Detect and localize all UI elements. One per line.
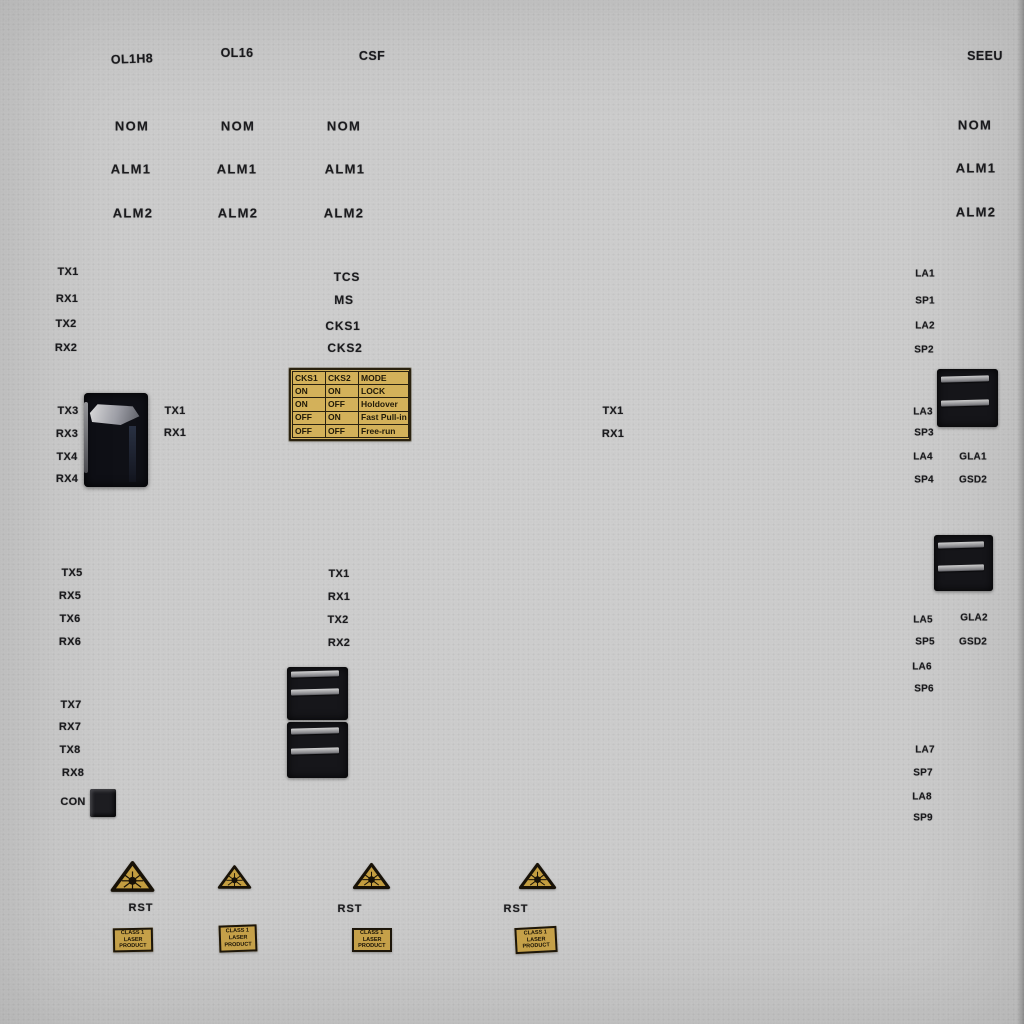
port-label-sp4: SP4 (914, 475, 934, 486)
panel-right-edge (1017, 0, 1024, 1024)
mode-table-cell: ON (326, 411, 359, 424)
reset-label: RST (129, 902, 154, 914)
port-label-rx4: RX4 (56, 473, 78, 485)
mode-table-cell: Holdover (359, 398, 409, 411)
duplex-adapter-right-2 (934, 535, 993, 591)
port-label-tx3: TX3 (57, 405, 78, 417)
port-label-rx1-mid: RX1 (164, 427, 186, 439)
port-label-rx3: RX3 (56, 428, 78, 440)
sticker-line: PRODUCT (523, 943, 551, 951)
port-label-rx5: RX5 (59, 590, 81, 602)
adapter-slot (291, 670, 339, 677)
class1-laser-sticker: CLASS 1 LASER PRODUCT (514, 926, 557, 954)
reset-label: RST (338, 903, 363, 915)
port-label-tx2-lower: TX2 (327, 614, 348, 626)
sticker-line: LASER (229, 935, 248, 942)
port-label-la8: LA8 (912, 792, 932, 803)
port-label-rx6: RX6 (59, 636, 81, 648)
port-label-sp9: SP9 (913, 813, 933, 824)
sticker-line: PRODUCT (358, 944, 385, 950)
led-label-alm2: ALM2 (113, 206, 154, 221)
sticker-line: PRODUCT (119, 943, 146, 950)
port-label-gsd2: GSD2 (959, 475, 987, 486)
connector-clip (84, 402, 88, 473)
port-label-la1: LA1 (915, 269, 935, 280)
adapter-slot (941, 399, 989, 406)
port-label-rx1-lower: RX1 (328, 591, 350, 603)
mode-table-cell: ON (293, 385, 326, 398)
port-label-con: CON (60, 796, 85, 808)
mode-table-header-cell: MODE (359, 372, 409, 385)
laser-warning-icon (352, 862, 391, 890)
console-connector (90, 789, 116, 817)
port-label-la6: LA6 (912, 662, 932, 673)
adapter-slot (941, 375, 989, 382)
mode-table-header-cell: CKS2 (326, 372, 359, 385)
port-label-la2: LA2 (915, 321, 935, 332)
mode-table-cell: OFF (293, 424, 326, 437)
led-label-alm2: ALM2 (324, 206, 365, 221)
port-label-gla1: GLA1 (959, 452, 986, 463)
class1-laser-sticker: CLASS 1 LASER PRODUCT (113, 928, 153, 953)
laser-warning-icon (109, 860, 156, 893)
port-label-la3: LA3 (913, 407, 933, 418)
sticker-line: CLASS 1 (524, 929, 548, 937)
port-label-sp7: SP7 (913, 768, 933, 779)
connector-latch (87, 404, 142, 425)
laser-warning-icon (217, 864, 252, 890)
label-ms: MS (334, 293, 354, 307)
adapter-slot (938, 564, 984, 571)
label-tcs: TCS (334, 270, 360, 284)
adapter-slot (291, 747, 339, 754)
port-label-la4: LA4 (913, 452, 933, 463)
port-label-la5: LA5 (913, 615, 933, 626)
port-label-tx1-center: TX1 (602, 405, 623, 417)
port-label-sp2: SP2 (914, 345, 934, 356)
duplex-adapter-center-2 (287, 722, 348, 778)
port-label-tx2: TX2 (55, 318, 76, 330)
adapter-slot (938, 541, 984, 548)
port-label-tx4: TX4 (56, 451, 77, 463)
mode-table-cell: OFF (293, 411, 326, 424)
class1-laser-sticker: CLASS 1 LASER PRODUCT (219, 924, 258, 952)
sticker-line: CLASS 1 (360, 930, 383, 936)
led-label-alm1: ALM1 (111, 162, 152, 177)
mode-table-cell: OFF (326, 424, 359, 437)
reset-label: RST (504, 903, 529, 915)
adapter-slot (291, 688, 339, 695)
led-label-alm1: ALM1 (325, 162, 366, 177)
led-label-alm1: ALM1 (956, 161, 997, 176)
class1-laser-sticker: CLASS 1 LASER PRODUCT (352, 928, 392, 952)
label-cks1: CKS1 (325, 319, 360, 333)
port-label-rx7: RX7 (59, 721, 81, 733)
led-label-alm1: ALM1 (217, 162, 258, 177)
equipment-front-panel: OL1H8 OL16 CSF SEEU NOM ALM1 ALM2 NOM AL… (0, 0, 1024, 1024)
adapter-slot (291, 727, 339, 734)
sticker-line: CLASS 1 (121, 930, 144, 937)
mode-table-cell: ON (326, 385, 359, 398)
mode-table-cell: LOCK (359, 385, 409, 398)
led-label-nom: NOM (115, 119, 149, 134)
port-label-gsd2: GSD2 (959, 637, 987, 648)
led-label-nom: NOM (221, 119, 255, 134)
mode-table-cell: Fast Pull-in (359, 411, 409, 424)
port-label-rx8: RX8 (62, 767, 84, 779)
laser-warning-icon (518, 862, 557, 890)
port-label-sp1: SP1 (915, 296, 935, 307)
sticker-line: LASER (363, 937, 382, 943)
connector-sheen (129, 426, 137, 482)
port-label-tx1: TX1 (57, 266, 78, 278)
port-label-la7: LA7 (915, 745, 935, 756)
port-label-tx1-mid: TX1 (164, 405, 185, 417)
port-label-rx2-lower: RX2 (328, 637, 350, 649)
board-title-ol1h8: OL1H8 (111, 51, 154, 66)
led-label-nom: NOM (958, 118, 992, 133)
mode-table-cell: OFF (326, 398, 359, 411)
port-label-gla2: GLA2 (960, 613, 987, 624)
port-label-tx6: TX6 (59, 613, 80, 625)
port-label-tx1-lower: TX1 (328, 568, 349, 580)
optical-connector-left (84, 393, 148, 487)
board-title-seeu: SEEU (967, 49, 1003, 63)
port-label-tx5: TX5 (61, 567, 82, 579)
port-label-sp3: SP3 (914, 428, 934, 439)
duplex-adapter-right-1 (937, 369, 998, 427)
cks-mode-table: CKS1 CKS2 MODE ON ON LOCK ON OFF Holdove… (289, 368, 411, 441)
port-label-tx7: TX7 (60, 699, 81, 711)
port-label-sp6: SP6 (914, 684, 934, 695)
sticker-line: PRODUCT (224, 942, 252, 949)
led-label-alm2: ALM2 (956, 205, 997, 220)
led-label-nom: NOM (327, 119, 361, 134)
port-label-rx1: RX1 (56, 293, 78, 305)
mode-table-cell: ON (293, 398, 326, 411)
board-title-csf: CSF (359, 49, 385, 63)
label-cks2: CKS2 (327, 341, 362, 355)
port-label-rx1-center: RX1 (602, 428, 624, 440)
board-title-ol16: OL16 (221, 46, 254, 60)
mode-table-header-cell: CKS1 (293, 372, 326, 385)
duplex-adapter-center-1 (287, 667, 348, 720)
led-label-alm2: ALM2 (218, 206, 259, 221)
port-label-tx8: TX8 (59, 744, 80, 756)
port-label-sp5: SP5 (915, 637, 935, 648)
port-label-rx2: RX2 (55, 342, 77, 354)
mode-table-cell: Free-run (359, 424, 409, 437)
